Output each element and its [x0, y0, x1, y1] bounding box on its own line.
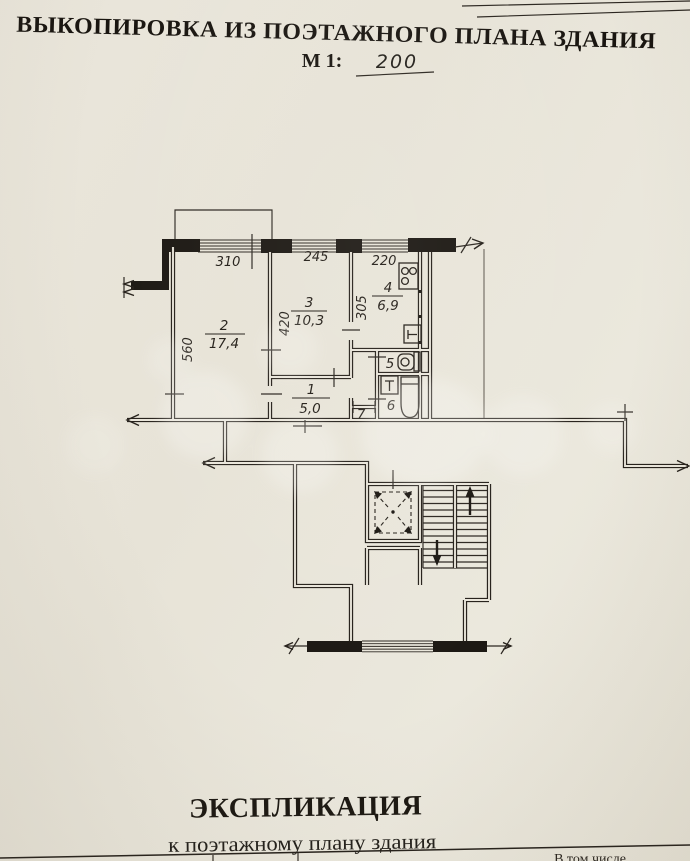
bti-floor-plan-document: ВЫКОПИРОВКА ИЗ ПОЭТАЖНОГО ПЛАНА ЗДАНИЯ М… [0, 0, 690, 861]
elevator-shaft-icon [374, 491, 412, 534]
scale-value: 200 [376, 51, 418, 73]
dim-305: 305 [355, 295, 370, 320]
room-5-number: 5 [386, 356, 395, 372]
room-1-number: 1 [307, 382, 316, 398]
room-4-number: 4 [384, 280, 393, 296]
room-1-area: 5,0 [299, 401, 320, 417]
explication-section: ЭКСПЛИКАЦИЯ к поэтажному плану здания [167, 790, 436, 857]
room-2-number: 2 [220, 318, 229, 334]
dim-310: 310 [216, 255, 241, 270]
room-2-area: 17,4 [209, 336, 239, 352]
room-3-number: 3 [305, 295, 314, 311]
scale-label: М 1: [302, 50, 343, 72]
document-canvas: ВЫКОПИРОВКА ИЗ ПОЭТАЖНОГО ПЛАНА ЗДАНИЯ М… [0, 0, 690, 861]
table-header-partial: В том числе [554, 852, 626, 861]
top-right-table-lines [462, 1, 690, 17]
explication-title: ЭКСПЛИКАЦИЯ [189, 790, 422, 824]
dim-245: 245 [304, 250, 329, 265]
entry-wall [285, 638, 511, 654]
toilet-icon [398, 352, 420, 371]
room-4-area: 6,9 [377, 298, 398, 314]
document-title: ВЫКОПИРОВКА ИЗ ПОЭТАЖНОГО ПЛАНА ЗДАНИЯ [16, 12, 656, 54]
stove-icon [399, 263, 418, 289]
dim-220: 220 [372, 254, 397, 269]
